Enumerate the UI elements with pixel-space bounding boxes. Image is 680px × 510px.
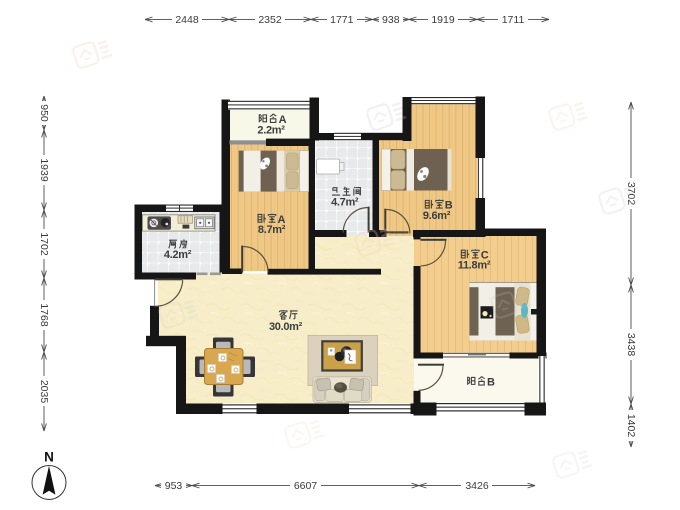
svg-text:1702: 1702 [38, 232, 50, 256]
svg-text:2035: 2035 [38, 380, 50, 404]
svg-text:30.0m²: 30.0m² [269, 321, 303, 333]
svg-text:2352: 2352 [258, 14, 282, 26]
svg-text:4.7m²: 4.7m² [331, 196, 359, 208]
svg-text:1939: 1939 [38, 158, 50, 182]
svg-text:1402: 1402 [625, 414, 637, 438]
svg-text:3426: 3426 [465, 480, 489, 492]
svg-text:1919: 1919 [431, 14, 455, 26]
svg-text:11.8m²: 11.8m² [458, 260, 491, 272]
svg-text:2448: 2448 [175, 14, 199, 26]
svg-text:4.2m²: 4.2m² [164, 249, 192, 261]
svg-text:N: N [44, 450, 54, 465]
svg-text:2.2m²: 2.2m² [257, 125, 285, 137]
svg-text:1711: 1711 [502, 14, 525, 26]
svg-text:938: 938 [382, 14, 400, 26]
svg-text:1768: 1768 [38, 303, 50, 327]
svg-text:1771: 1771 [330, 14, 354, 26]
svg-text:953: 953 [165, 480, 183, 492]
svg-text:B: B [487, 376, 495, 388]
svg-text:9.6m²: 9.6m² [423, 210, 451, 222]
svg-text:3438: 3438 [625, 333, 637, 357]
svg-text:6607: 6607 [294, 480, 318, 492]
svg-text:8.7m²: 8.7m² [258, 224, 286, 236]
svg-text:950: 950 [38, 104, 50, 122]
